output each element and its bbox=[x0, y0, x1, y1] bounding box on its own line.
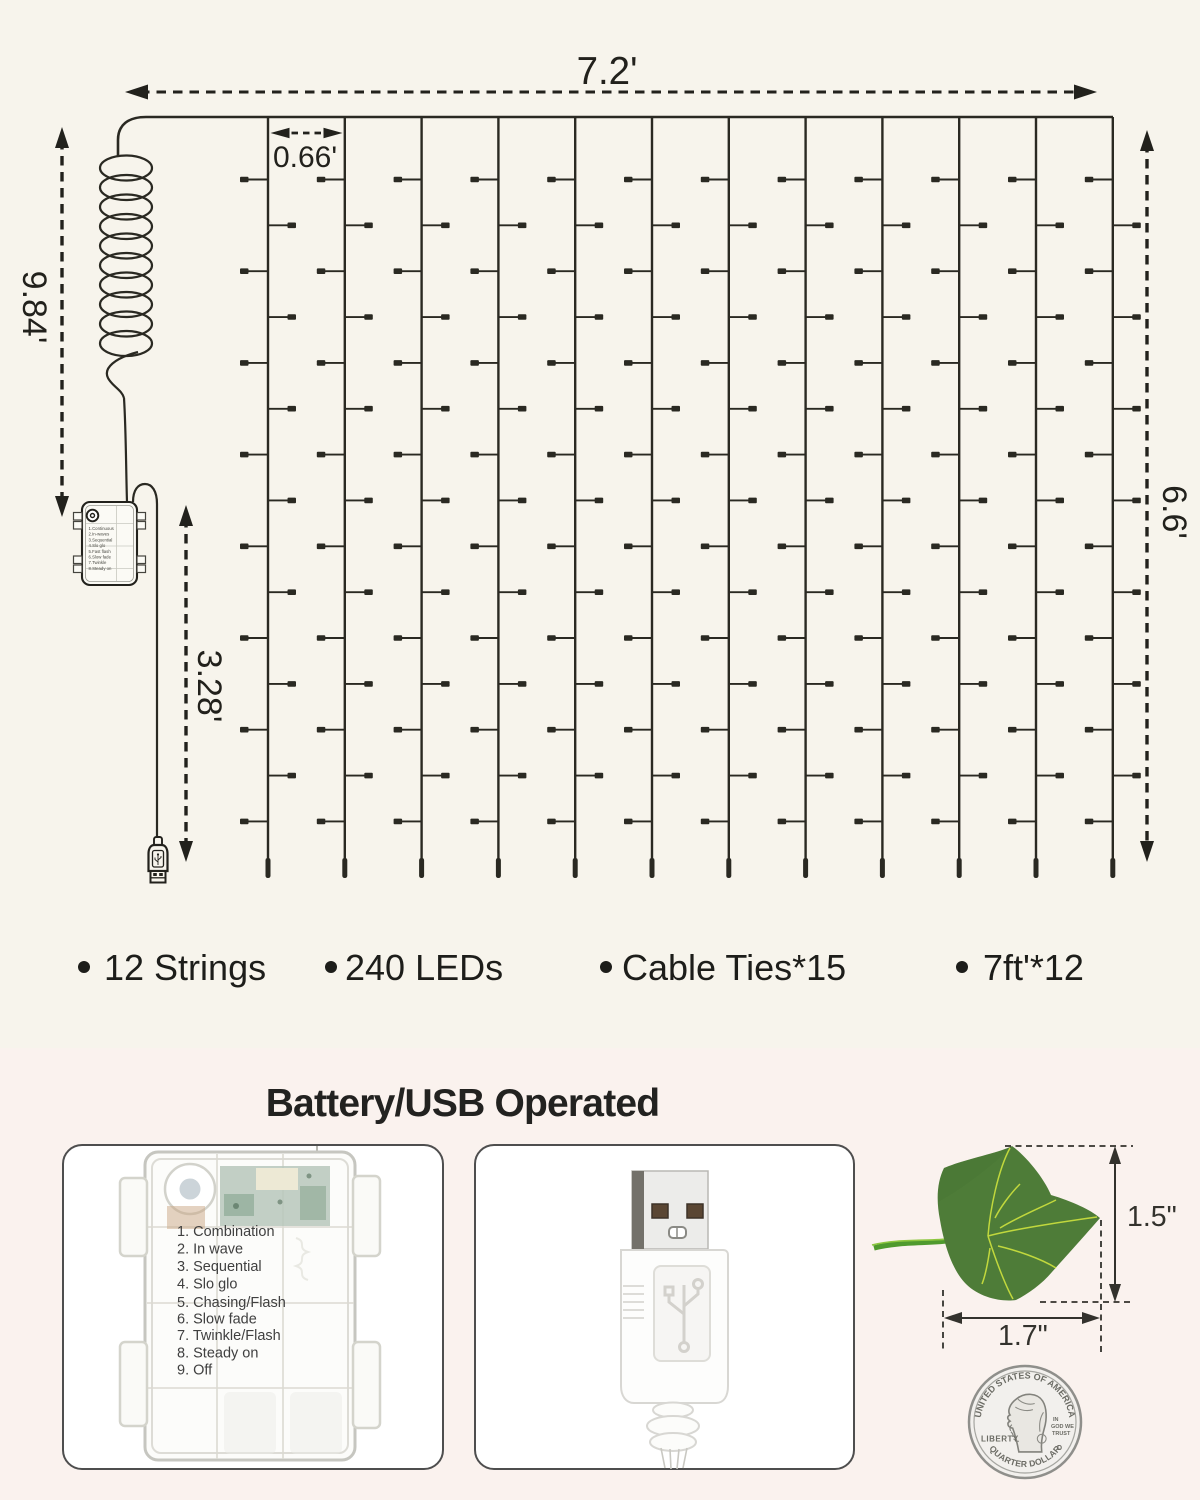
svg-text:4. Slo glo: 4. Slo glo bbox=[177, 1277, 237, 1293]
svg-text:3. Sequential: 3. Sequential bbox=[177, 1259, 262, 1275]
svg-text:6.Slow fade: 6.Slow fade bbox=[89, 555, 112, 560]
svg-text:Cable Ties*15: Cable Ties*15 bbox=[622, 947, 846, 988]
svg-text:1.7": 1.7" bbox=[998, 1320, 1048, 1352]
svg-text:1.Continuous: 1.Continuous bbox=[89, 526, 114, 531]
svg-text:LIBERTY: LIBERTY bbox=[981, 1435, 1019, 1444]
svg-text:3.Sequential: 3.Sequential bbox=[89, 537, 113, 542]
svg-text:0.66': 0.66' bbox=[273, 141, 337, 174]
svg-text:6.6': 6.6' bbox=[1155, 485, 1193, 539]
svg-text:7ft'*12: 7ft'*12 bbox=[983, 947, 1084, 988]
svg-text:8.Steady on: 8.Steady on bbox=[89, 566, 113, 571]
svg-text:D: D bbox=[1057, 1445, 1062, 1452]
svg-text:9.84': 9.84' bbox=[15, 271, 53, 344]
svg-text:7.2': 7.2' bbox=[577, 50, 638, 93]
svg-text:6. Slow fade: 6. Slow fade bbox=[177, 1312, 257, 1328]
svg-text:240 LEDs: 240 LEDs bbox=[345, 947, 503, 988]
svg-text:3.28': 3.28' bbox=[190, 650, 228, 723]
svg-text:4.Slo glo: 4.Slo glo bbox=[89, 543, 106, 548]
svg-text:5. Chasing/Flash: 5. Chasing/Flash bbox=[177, 1295, 286, 1311]
svg-text:2. In wave: 2. In wave bbox=[177, 1242, 243, 1258]
svg-text:2.In-waves: 2.In-waves bbox=[89, 532, 110, 537]
svg-text:5.Fast flash: 5.Fast flash bbox=[89, 549, 112, 554]
svg-text:IN: IN bbox=[1053, 1417, 1059, 1423]
svg-text:9. Off: 9. Off bbox=[177, 1363, 213, 1379]
svg-text:12 Strings: 12 Strings bbox=[104, 947, 266, 988]
svg-text:7. Twinkle/Flash: 7. Twinkle/Flash bbox=[177, 1328, 281, 1344]
svg-text:7.Twinkle: 7.Twinkle bbox=[89, 560, 108, 565]
svg-text:8. Steady on: 8. Steady on bbox=[177, 1346, 258, 1362]
svg-text:1. Combination: 1. Combination bbox=[177, 1224, 275, 1240]
svg-text:TRUST: TRUST bbox=[1052, 1431, 1071, 1437]
svg-text:1.5": 1.5" bbox=[1127, 1201, 1177, 1233]
svg-text:GOD WE: GOD WE bbox=[1051, 1424, 1074, 1430]
